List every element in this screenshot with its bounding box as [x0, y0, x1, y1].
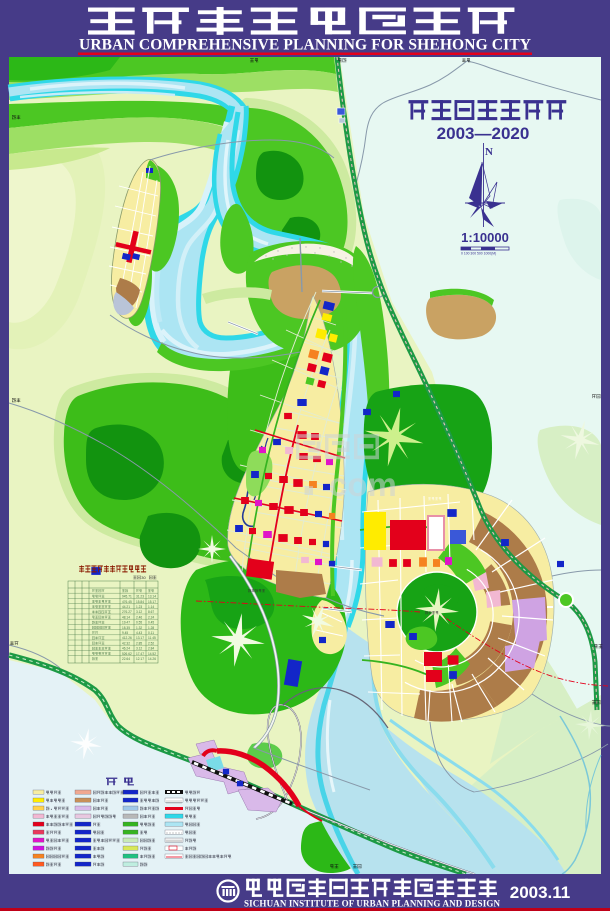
svg-text:15.84: 15.84	[136, 600, 144, 604]
svg-text:11.45: 11.45	[148, 636, 156, 640]
svg-text:URBAN COMPREHENSIVE PLANNING F: URBAN COMPREHENSIVE PLANNING FOR SHEHONG…	[79, 37, 531, 54]
svg-text:8.67: 8.67	[148, 610, 154, 614]
svg-text:3.12: 3.12	[136, 610, 142, 614]
svg-text:12.17: 12.17	[136, 657, 144, 661]
svg-text:42.32: 42.32	[122, 641, 130, 645]
svg-text:18.35: 18.35	[122, 626, 130, 630]
svg-text:14.52: 14.52	[148, 652, 156, 656]
svg-text:0.45: 0.45	[148, 621, 154, 625]
svg-text:0 100 300 500 1000: 0 100 300 500 1000(M)	[461, 252, 496, 256]
svg-text:4.43: 4.43	[136, 631, 142, 635]
svg-text:13.17: 13.17	[136, 636, 144, 640]
svg-text:48.14: 48.14	[122, 615, 130, 619]
svg-text:3.12: 3.12	[136, 647, 142, 651]
svg-text:17.47: 17.47	[136, 652, 144, 656]
svg-text:22.64: 22.64	[122, 657, 130, 661]
svg-text:14.26: 14.26	[148, 657, 156, 661]
svg-text:SICHUAN INSTITUTE OF URBAN PLA: SICHUAN INSTITUTE OF URBAN PLANNING AND …	[244, 899, 501, 909]
svg-text:15.17: 15.17	[148, 600, 156, 604]
svg-text:44.21: 44.21	[122, 605, 130, 609]
svg-text:N: N	[485, 146, 493, 158]
svg-text:2.24: 2.24	[148, 615, 154, 619]
svg-text:com: com	[329, 466, 397, 503]
svg-text:2003.11: 2003.11	[510, 883, 571, 902]
svg-text:46.24: 46.24	[122, 647, 130, 651]
svg-text:276.27: 276.27	[122, 610, 132, 614]
svg-text:1.23: 1.23	[136, 605, 142, 609]
svg-text:1.32: 1.32	[136, 626, 142, 630]
svg-text:0.55: 0.55	[136, 621, 142, 625]
svg-text:1:10000: 1:10000	[461, 230, 509, 245]
svg-text:2.52: 2.52	[148, 641, 154, 645]
svg-text:945.71: 945.71	[122, 595, 132, 599]
svg-text:31.23: 31.23	[136, 595, 144, 599]
svg-text:2.46: 2.46	[136, 615, 142, 619]
svg-text:30: 30	[141, 575, 146, 580]
svg-text:13.14: 13.14	[148, 595, 156, 599]
svg-text:2.85: 2.85	[136, 641, 142, 645]
svg-text:1.28: 1.28	[148, 626, 154, 630]
svg-text:526.62: 526.62	[122, 652, 132, 656]
svg-text:2.84: 2.84	[148, 647, 154, 651]
svg-text:476.45: 476.45	[122, 600, 132, 604]
svg-text:1.14: 1.14	[148, 605, 154, 609]
svg-text:19.47: 19.47	[122, 621, 130, 625]
svg-text:412.26: 412.26	[122, 636, 132, 640]
svg-text:9.45: 9.45	[122, 631, 128, 635]
svg-text:2003—2020: 2003—2020	[437, 124, 530, 143]
svg-text:0.11: 0.11	[148, 631, 154, 635]
